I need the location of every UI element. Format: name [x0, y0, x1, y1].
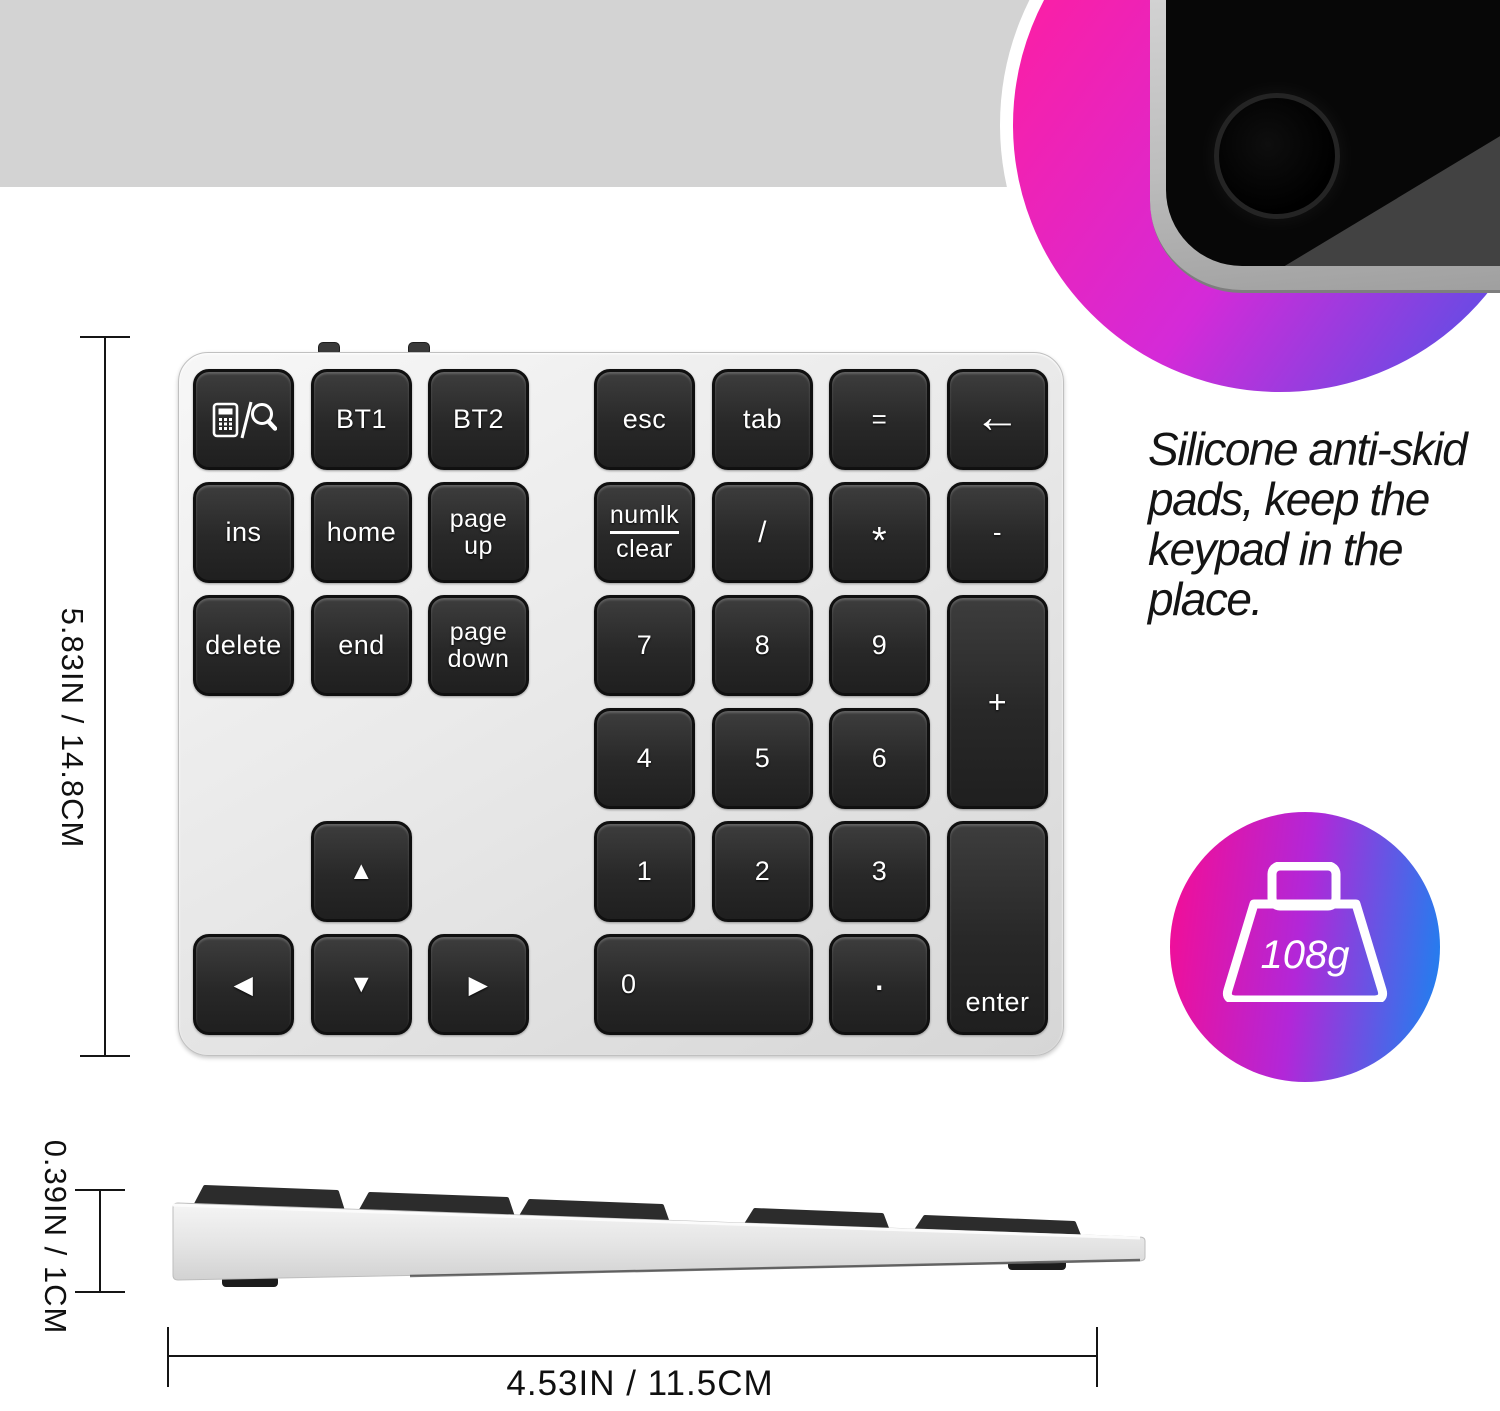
- backspace-arrow-icon: ←: [974, 393, 1021, 439]
- key-divide: /: [712, 482, 813, 583]
- tablet-corner-image: [1150, 0, 1500, 293]
- key-label: 9: [872, 630, 888, 661]
- key-label: 6: [872, 743, 888, 774]
- key-label: tab: [743, 404, 782, 435]
- numeric-keypad-front-view: BT1BT2esctab=←inshomepageupnumlkclear/*-…: [178, 352, 1064, 1056]
- key-ins: ins: [193, 482, 294, 583]
- weight-badge: 108g: [1170, 812, 1440, 1082]
- dimension-tick: [1096, 1327, 1098, 1387]
- key-backspace: ←: [947, 369, 1048, 470]
- thickness-dimension-line: [99, 1190, 101, 1292]
- key-arrow-left: ◀: [193, 934, 294, 1035]
- key-label: 3: [872, 856, 888, 887]
- key-label: 4: [637, 743, 653, 774]
- key-label: BT1: [336, 404, 387, 435]
- dimension-tick: [80, 1055, 130, 1057]
- key-num6: 6: [829, 708, 930, 809]
- key-num5: 5: [712, 708, 813, 809]
- key-label: 5: [755, 743, 771, 774]
- key-label: 7: [637, 630, 653, 661]
- key-label: home: [327, 517, 397, 548]
- key-end: end: [311, 595, 412, 696]
- key-num8: 8: [712, 595, 813, 696]
- left-arrow-icon: ◀: [234, 970, 254, 1000]
- key-enter: enter: [947, 821, 1048, 1035]
- decimal-dot: ·: [872, 961, 887, 1009]
- camera-lens-icon: [1214, 93, 1340, 219]
- key-plus: +: [947, 595, 1048, 809]
- key-label: enter: [965, 987, 1029, 1018]
- key-label: esc: [623, 404, 667, 435]
- key-tab: tab: [712, 369, 813, 470]
- key-num0: 0: [594, 934, 813, 1035]
- key-num7: 7: [594, 595, 695, 696]
- key-numlk-clear: numlkclear: [594, 482, 695, 583]
- key-label: /: [758, 516, 767, 550]
- key-num2: 2: [712, 821, 813, 922]
- height-dimension-label: 5.83IN / 14.8CM: [54, 608, 90, 849]
- thickness-dimension-label: 0.39IN / 1CM: [37, 1140, 73, 1335]
- key-label: *: [872, 520, 887, 563]
- key-label: 2: [755, 856, 771, 887]
- key-arrow-down: ▼: [311, 934, 412, 1035]
- key-bt1: BT1: [311, 369, 412, 470]
- key-bt2: BT2: [428, 369, 529, 470]
- weight-value: 108g: [1261, 933, 1350, 977]
- dimension-tick: [167, 1327, 169, 1387]
- product-infographic: Slim, Portable Desing BT1BT2esctab=←insh…: [0, 0, 1500, 1411]
- key-label: numlk: [610, 502, 679, 534]
- key-num3: 3: [829, 821, 930, 922]
- key-label: page: [450, 619, 508, 646]
- key-num9: 9: [829, 595, 930, 696]
- key-label: 0: [621, 969, 637, 1000]
- key-label: end: [338, 630, 385, 661]
- key-label: ins: [225, 517, 261, 548]
- key-label: 8: [755, 630, 771, 661]
- key-label: delete: [205, 630, 282, 661]
- keypad-side-view: [150, 1175, 1150, 1315]
- key-page-down: pagedown: [428, 595, 529, 696]
- calculator-search-icon: [211, 397, 277, 443]
- key-num1: 1: [594, 821, 695, 922]
- key-label: -: [993, 517, 1002, 548]
- dimension-tick: [75, 1291, 125, 1293]
- key-delete: delete: [193, 595, 294, 696]
- key-esc: esc: [594, 369, 695, 470]
- right-arrow-icon: ▶: [469, 970, 489, 1000]
- key-label: clear: [616, 536, 673, 563]
- key-label: =: [872, 404, 888, 435]
- key-num4: 4: [594, 708, 695, 809]
- weight-icon: 108g: [1212, 862, 1398, 1002]
- down-arrow-icon: ▼: [349, 970, 374, 999]
- key-arrow-right: ▶: [428, 934, 529, 1035]
- up-arrow-icon: ▲: [349, 857, 374, 886]
- key-label: BT2: [453, 404, 504, 435]
- feature-description: Silicone anti-skid pads, keep the keypad…: [1148, 424, 1500, 624]
- key-label: page: [450, 506, 508, 533]
- key-multiply: *: [829, 482, 930, 583]
- tablet-screen: [1166, 0, 1500, 266]
- key-label: 1: [637, 856, 653, 887]
- key-page-up: pageup: [428, 482, 529, 583]
- key-label: up: [464, 533, 493, 560]
- key-label: +: [988, 684, 1007, 721]
- width-dimension-line: [168, 1355, 1098, 1357]
- key-label: down: [448, 646, 510, 673]
- key-minus: -: [947, 482, 1048, 583]
- key-arrow-up: ▲: [311, 821, 412, 922]
- key-equals: =: [829, 369, 930, 470]
- key-home: home: [311, 482, 412, 583]
- key-calc-search: [193, 369, 294, 470]
- key-decimal: ·: [829, 934, 930, 1035]
- width-dimension-label: 4.53IN / 11.5CM: [506, 1364, 773, 1404]
- height-dimension-line: [104, 337, 106, 1056]
